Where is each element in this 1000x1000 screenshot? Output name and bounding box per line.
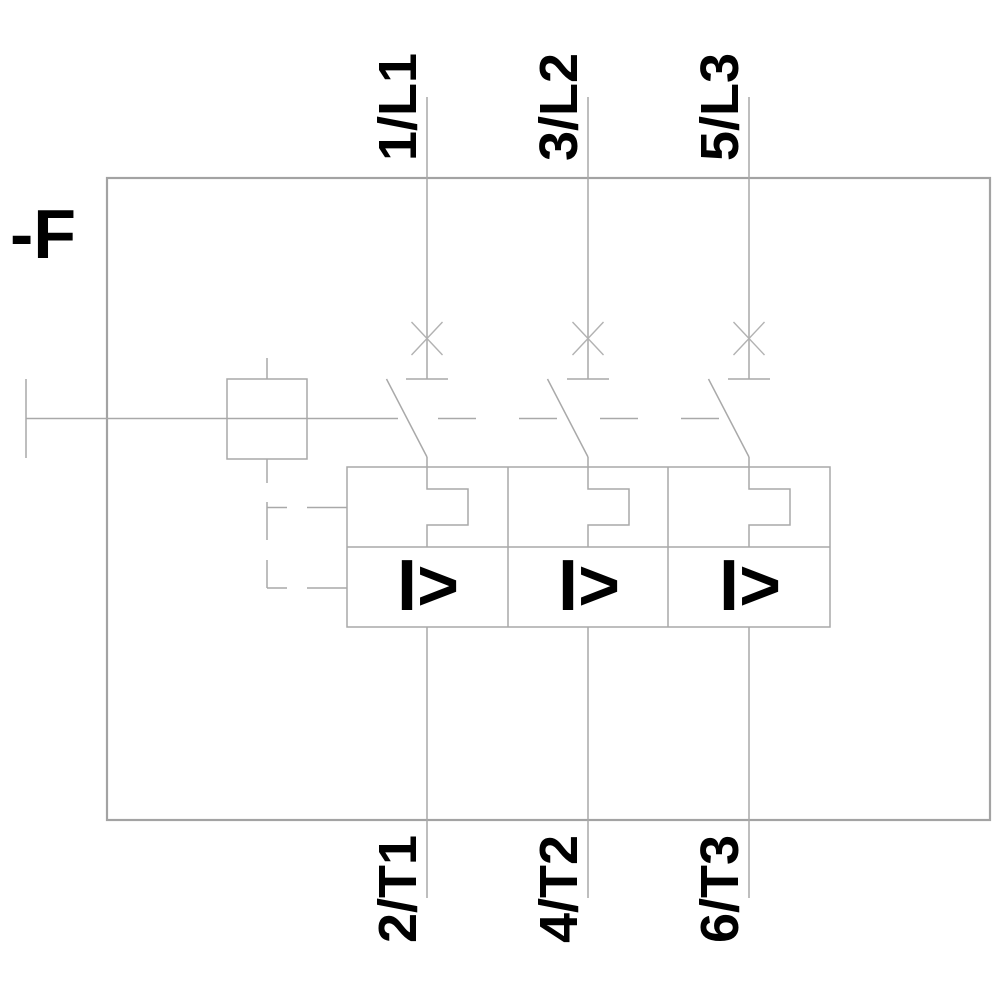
magnetic-overcurrent-icon: I>	[397, 546, 459, 626]
terminal-label-bottom: 2/T1	[368, 835, 428, 943]
pole-2: I> 3/L2 4/T2	[529, 53, 629, 943]
circuit-breaker-schematic: I> 1/L1 2/T1 I> 3/L2 4/T2	[0, 0, 1000, 1000]
pole-3: I> 5/L3 6/T3	[690, 53, 790, 943]
terminal-label-bottom: 6/T3	[690, 835, 750, 943]
terminal-label-bottom: 4/T2	[529, 835, 589, 943]
terminal-label-top: 1/L1	[368, 53, 428, 161]
magnetic-overcurrent-icon: I>	[558, 546, 620, 626]
device-designation-label: -F	[10, 195, 76, 273]
schematic-canvas: I> 1/L1 2/T1 I> 3/L2 4/T2	[0, 0, 1000, 1000]
pole-1: I> 1/L1 2/T1	[368, 53, 468, 943]
thermal-overload-icon	[588, 467, 629, 547]
operator-mechanism	[26, 358, 398, 459]
terminal-label-top: 5/L3	[690, 53, 750, 161]
thermal-overload-icon	[749, 467, 790, 547]
thermal-overload-icon	[427, 467, 468, 547]
enclosure-outline	[107, 178, 990, 820]
magnetic-overcurrent-icon: I>	[719, 546, 781, 626]
trip-linkage	[267, 419, 729, 589]
terminal-label-top: 3/L2	[529, 53, 589, 161]
